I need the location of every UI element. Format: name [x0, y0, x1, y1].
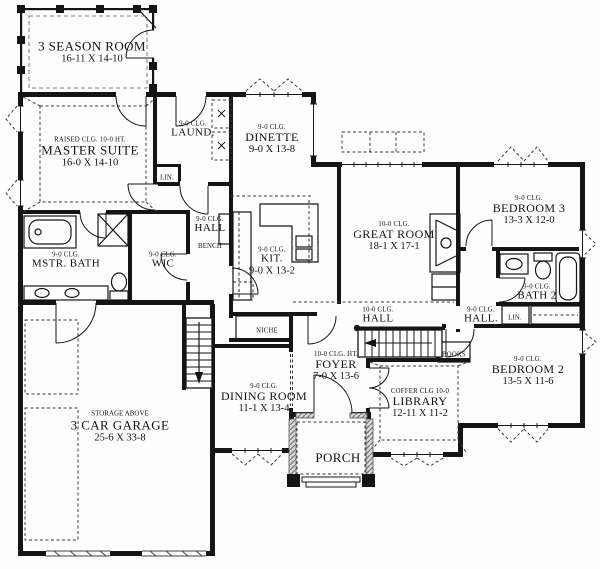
room-dims: 7-0 X 13-6: [313, 371, 359, 382]
room-name: FOYER: [313, 359, 359, 372]
room-name: HALL: [195, 223, 226, 235]
bath2-vanity: [500, 254, 528, 274]
closet-name: LIN.: [160, 174, 174, 181]
master-vanity: [24, 286, 108, 300]
master-tub: [24, 216, 76, 248]
niche-label: NICHE: [256, 319, 278, 336]
room-dims: 9-0 X 13-2: [249, 266, 295, 277]
room-label-porch: PORCH: [315, 451, 360, 465]
room-label-season: 3 SEASON ROOM 16-11 X 14-10: [38, 39, 146, 64]
floor-plan-drawing: [0, 0, 600, 569]
floor-plan: 3 SEASON ROOM 16-11 X 14-10 RAISED CLG. …: [0, 0, 600, 569]
room-dims: 13-5 X 11-6: [492, 376, 565, 387]
laundry-machines: [218, 110, 225, 149]
room-label-hall-bedrooms: 9-0 CLG. HALL.: [464, 306, 498, 325]
closet-name: BOOKS: [442, 351, 466, 358]
wall-openings: [46, 30, 501, 557]
room-label-great-room: 10-0 CLG. GREAT ROOM 18-1 X 17-1: [353, 221, 434, 253]
room-label-dining: 9-0 CLG. DINING ROOM 11-1 X 13-4: [221, 383, 307, 415]
bench-note: BENCH: [198, 243, 222, 250]
room-label-hall-center: 10-0 CLG. HALL: [362, 306, 393, 325]
center-stair: [354, 325, 445, 357]
room-dims: 11-1 X 13-4: [221, 403, 307, 414]
room-label-foyer: 10-0 CLG. HT. FOYER 7-0 X 13-6: [313, 351, 359, 383]
room-dims: 18-1 X 17-1: [353, 241, 434, 252]
room-name: KIT.: [249, 254, 295, 266]
room-label-bath2: 9-0 CLG. BATH 2: [517, 283, 556, 302]
room-label-dinette: 9-0 CLG. DINETTE 9-0 X 13-8: [245, 124, 298, 156]
room-name: PORCH: [315, 451, 360, 465]
room-name: MASTER SUITE: [41, 144, 139, 158]
room-name: 3 CAR GARAGE: [71, 418, 170, 432]
garage-stair: [186, 318, 212, 388]
room-label-bedroom2: 9-0 CLG. BEDROOM 2 13-5 X 11-6: [492, 356, 565, 388]
room-name: LAUND.: [171, 128, 215, 140]
room-label-garage: STORAGE ABOVE 3 CAR GARAGE 25-6 X 33-8: [71, 411, 170, 444]
room-name: BATH 2: [517, 291, 556, 303]
media-cabinet: [432, 274, 458, 300]
room-name: BEDROOM 2: [492, 364, 565, 377]
master-toilet: [110, 273, 128, 300]
room-name: BEDROOM 3: [493, 203, 566, 216]
room-label-kitchen: 9-0 CLG. KIT. 9-0 X 13-2: [249, 247, 295, 278]
room-label-wic: 9-0 CLG. WIC: [149, 251, 177, 270]
room-label-mstr-bath: 9-0 CLG. MSTR. BATH: [32, 251, 100, 270]
room-dims: 13-3 X 12-0: [493, 215, 566, 226]
room-name: WIC: [149, 259, 177, 271]
room-label-hall-bench: 9-0 CLG. HALL BENCH: [195, 216, 226, 252]
room-dims: 12-11 X 11-2: [391, 408, 449, 419]
room-name: DINING ROOM: [221, 391, 307, 404]
room-dims: 16-0 X 14-10: [41, 158, 139, 169]
room-label-bedroom3: 9-0 CLG. BEDROOM 3 13-3 X 12-0: [493, 195, 566, 227]
room-label-library: COFFER CLG 10-0 LIBRARY 12-11 X 11-2: [391, 388, 449, 420]
closet-name: NICHE: [256, 327, 278, 334]
room-dims: 9-0 X 13-8: [245, 144, 298, 155]
closet-label-books: BOOKS: [442, 343, 466, 360]
room-dims: 16-11 X 14-10: [38, 53, 146, 64]
room-name: HALL.: [464, 314, 498, 326]
master-shower: [98, 214, 128, 246]
room-label-master: RAISED CLG. 10-0 HT. MASTER SUITE 16-0 X…: [41, 137, 139, 170]
room-label-laundry: 9-0 CLG. LAUND.: [171, 120, 215, 139]
room-name: 3 SEASON ROOM: [38, 39, 146, 53]
bath2-tub: [556, 253, 580, 304]
room-name: MSTR. BATH: [32, 259, 100, 271]
room-name: GREAT ROOM: [353, 229, 434, 242]
room-name: DINETTE: [245, 132, 298, 145]
closet-label-lin-hall: LIN.: [508, 306, 522, 323]
room-dims: 25-6 X 33-8: [71, 432, 170, 443]
room-name: HALL: [362, 314, 393, 326]
bath2-toilet: [534, 253, 552, 279]
closet-label-lin-laundry: LIN.: [160, 166, 174, 183]
closet-name: LIN.: [508, 314, 522, 321]
room-name: LIBRARY: [391, 396, 449, 409]
